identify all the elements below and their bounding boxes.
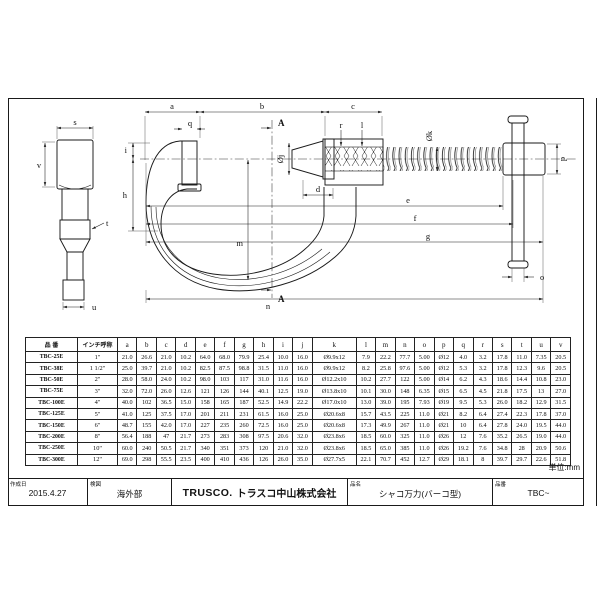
model-cell: TBC-200E (26, 431, 78, 442)
value-cell: 201 (195, 408, 214, 419)
value-cell: Ø9.9x12 (312, 363, 356, 374)
table-row: TBC-38E1 1/2"25.039.721.010.282.587.598.… (26, 363, 571, 374)
value-cell: 12.5 (273, 386, 292, 397)
value-cell: 27.8 (492, 420, 511, 431)
column-header: h (254, 338, 273, 352)
value-cell: 16.0 (273, 408, 292, 419)
value-cell: 25.0 (118, 363, 137, 374)
value-cell: 37.0 (551, 408, 571, 419)
value-cell: Ø21 (434, 408, 453, 419)
value-cell: 325 (395, 431, 414, 442)
value-cell: Ø15 (434, 386, 453, 397)
value-cell: 22.1 (356, 454, 375, 465)
column-header: s (492, 338, 511, 352)
value-cell: 103 (215, 374, 234, 385)
value-cell: 19.5 (531, 420, 550, 431)
value-cell: 18.6 (492, 374, 511, 385)
dim-label-b: b (260, 101, 264, 111)
value-cell: 26.6 (137, 352, 156, 363)
value-cell: 27.7 (376, 374, 395, 385)
table-row: TBC-75E3"32.072.026.012.612112614440.112… (26, 386, 571, 397)
value-cell: 10.2 (176, 363, 195, 374)
column-header: a (118, 338, 137, 352)
value-cell: 16.0 (293, 363, 312, 374)
value-cell: 39.0 (376, 397, 395, 408)
value-cell: 28 (512, 443, 531, 454)
value-cell: 26.0 (492, 397, 511, 408)
value-cell: 7.6 (473, 431, 492, 442)
value-cell: 10 (454, 420, 473, 431)
value-cell: 4.5 (473, 386, 492, 397)
value-cell: 82.5 (195, 363, 214, 374)
product-code-value: TBC~ (493, 488, 584, 498)
value-cell: 25.8 (376, 363, 395, 374)
value-cell: 17.5 (512, 386, 531, 397)
dim-label-n: n (266, 301, 271, 311)
title-block: 作成日 2015.4.27 検図 海外部 TRUSCO. トラスコ中山株式会社 … (8, 478, 584, 506)
table-row: TBC-25E1"21.026.621.010.264.068.079.925.… (26, 352, 571, 363)
value-cell: 283 (215, 431, 234, 442)
dim-label-m: m (236, 238, 243, 248)
value-cell: 12.9 (531, 397, 550, 408)
value-cell: Ø13.8x10 (312, 386, 356, 397)
value-cell: 60.0 (376, 431, 395, 442)
value-cell: 21.8 (492, 386, 511, 397)
model-cell: TBC-300E (26, 454, 78, 465)
column-header: b (137, 338, 156, 352)
company-name: トラスコ中山株式会社 (237, 485, 337, 500)
value-cell: 70.7 (376, 454, 395, 465)
value-cell: 32.0 (293, 443, 312, 454)
table-header-row: 品 番インチ呼称abcdefghijklmnopqrstuv (26, 338, 571, 352)
value-cell: 125 (137, 408, 156, 419)
value-cell: 17.3 (356, 420, 375, 431)
value-cell: 22.2 (293, 397, 312, 408)
value-cell: 452 (395, 454, 414, 465)
value-cell: 72.0 (137, 386, 156, 397)
value-cell: 32.0 (293, 431, 312, 442)
value-cell: 8.2 (454, 408, 473, 419)
inch-cell: 5" (78, 408, 118, 419)
value-cell: 55.5 (156, 454, 175, 465)
dim-label-q: q (188, 118, 193, 128)
drawing-sheet: s v t u (0, 0, 600, 600)
value-cell: 16.0 (293, 352, 312, 363)
value-cell: 56.4 (118, 431, 137, 442)
value-cell: 10.1 (356, 386, 375, 397)
value-cell: 18.2 (512, 397, 531, 408)
value-cell: 187 (234, 397, 253, 408)
value-cell: Ø20.6x8 (312, 420, 356, 431)
value-cell: 13 (531, 386, 550, 397)
product-name-value: シャコ万力(バーコ型) (348, 488, 492, 500)
value-cell: Ø9.9x12 (312, 352, 356, 363)
section-label-top: A (278, 118, 285, 128)
table-row: TBC-50E2"28.058.024.010.298.010311731.01… (26, 374, 571, 385)
column-header: e (195, 338, 214, 352)
value-cell: 19.0 (293, 386, 312, 397)
value-cell: 7.9 (356, 352, 375, 363)
column-header: n (395, 338, 414, 352)
value-cell: 11.0 (415, 408, 434, 419)
dim-label-t: t (106, 218, 109, 228)
value-cell: 10.8 (531, 374, 550, 385)
value-cell: 60.0 (118, 443, 137, 454)
value-cell: 240 (137, 443, 156, 454)
value-cell: 7.6 (473, 443, 492, 454)
value-cell: 195 (395, 397, 414, 408)
value-cell: 41.0 (118, 408, 137, 419)
column-header: t (512, 338, 531, 352)
value-cell: 12.3 (512, 363, 531, 374)
value-cell: 21.0 (156, 352, 175, 363)
screw-part-drawing: s v t u (37, 117, 109, 312)
value-cell: 17.0 (176, 408, 195, 419)
inch-cell: 12" (78, 454, 118, 465)
column-header: j (293, 338, 312, 352)
value-cell: 10.2 (356, 374, 375, 385)
value-cell: 17.0 (176, 420, 195, 431)
value-cell: 308 (234, 431, 253, 442)
value-cell: 39.7 (137, 363, 156, 374)
value-cell: 17.8 (492, 363, 511, 374)
created-date-label: 作成日 (10, 480, 27, 488)
value-cell: 97.6 (395, 363, 414, 374)
value-cell: 31.5 (551, 397, 571, 408)
value-cell: 98.0 (195, 374, 214, 385)
value-cell: 20.5 (551, 352, 571, 363)
value-cell: 13.0 (356, 397, 375, 408)
value-cell: 260 (234, 420, 253, 431)
value-cell: 98.8 (234, 363, 253, 374)
value-cell: 14.4 (512, 374, 531, 385)
value-cell: Ø12.2x10 (312, 374, 356, 385)
value-cell: 6.4 (473, 408, 492, 419)
checked-by-cell: 検図 海外部 (88, 479, 172, 506)
value-cell: 6.5 (454, 386, 473, 397)
table-row: TBC-250E10"60.024050.521.734035137312021… (26, 443, 571, 454)
value-cell: 58.0 (137, 374, 156, 385)
value-cell: 5.00 (415, 352, 434, 363)
value-cell: 20.5 (551, 363, 571, 374)
value-cell: 148 (395, 386, 414, 397)
value-cell: 23.0 (551, 374, 571, 385)
model-cell: TBC-125E (26, 408, 78, 419)
value-cell: 11.0 (273, 363, 292, 374)
value-cell: 227 (195, 420, 214, 431)
value-cell: 23.5 (176, 454, 195, 465)
table-row: TBC-125E5"41.012537.517.020121123161.516… (26, 408, 571, 419)
value-cell: 155 (137, 420, 156, 431)
created-date-cell: 作成日 2015.4.27 (8, 479, 88, 506)
value-cell: 11.0 (512, 352, 531, 363)
column-header: l (356, 338, 375, 352)
value-cell: 19.0 (531, 431, 550, 442)
value-cell: 30.0 (376, 386, 395, 397)
table-row: TBC-200E8"56.41884721.727328330897.520.6… (26, 431, 571, 442)
value-cell: 117 (234, 374, 253, 385)
value-cell: 7.93 (415, 397, 434, 408)
value-cell: 12.6 (176, 386, 195, 397)
column-header: o (415, 338, 434, 352)
value-cell: 25.4 (254, 352, 273, 363)
value-cell: 351 (215, 443, 234, 454)
value-cell: 15.0 (176, 397, 195, 408)
model-cell: TBC-150E (26, 420, 78, 431)
column-header: d (176, 338, 195, 352)
dim-label-a: a (170, 101, 174, 111)
column-header: r (473, 338, 492, 352)
model-cell: TBC-38E (26, 363, 78, 374)
value-cell: 47 (156, 431, 175, 442)
value-cell: 231 (234, 408, 253, 419)
value-cell: 68.0 (215, 352, 234, 363)
value-cell: 21.7 (176, 431, 195, 442)
dim-label-g: g (426, 231, 431, 241)
dim-label-u: u (92, 302, 97, 312)
dim-label-c: c (351, 101, 355, 111)
value-cell: 16.0 (273, 420, 292, 431)
value-cell: 21.0 (118, 352, 137, 363)
inch-cell: 1 1/2" (78, 363, 118, 374)
dim-label-s: s (73, 117, 76, 127)
value-cell: 126 (215, 386, 234, 397)
column-header: c (156, 338, 175, 352)
value-cell: Ø19 (434, 397, 453, 408)
value-cell: 44.0 (551, 431, 571, 442)
value-cell: 20.9 (531, 443, 550, 454)
column-header: q (454, 338, 473, 352)
value-cell: 9.5 (454, 397, 473, 408)
value-cell: 121 (195, 386, 214, 397)
dim-label-f: f (414, 213, 417, 223)
value-cell: 21.0 (156, 363, 175, 374)
value-cell: 235 (215, 420, 234, 431)
value-cell: 5.3 (454, 363, 473, 374)
value-cell: 17.8 (492, 352, 511, 363)
value-cell: 165 (215, 397, 234, 408)
value-cell: 28.0 (118, 374, 137, 385)
value-cell: Ø17.0x10 (312, 397, 356, 408)
value-cell: 34.8 (492, 443, 511, 454)
value-cell: 79.9 (234, 352, 253, 363)
value-cell: 31.0 (254, 374, 273, 385)
value-cell: 22.2 (376, 352, 395, 363)
value-cell: 8.2 (356, 363, 375, 374)
value-cell: 5.00 (415, 374, 434, 385)
value-cell: 211 (215, 408, 234, 419)
dim-label-l: l (361, 120, 364, 130)
value-cell: 6.35 (415, 386, 434, 397)
dimension-table: 品 番インチ呼称abcdefghijklmnopqrstuv TBC-25E1"… (25, 337, 571, 466)
value-cell: 5.3 (473, 397, 492, 408)
value-cell: 24.0 (156, 374, 175, 385)
table-row: TBC-150E6"48.715542.017.022723526072.516… (26, 420, 571, 431)
dim-label-h: h (123, 190, 128, 200)
value-cell: 36.5 (156, 397, 175, 408)
column-header: p (434, 338, 453, 352)
dim-label-d: d (316, 184, 321, 194)
inch-cell: 4" (78, 397, 118, 408)
value-cell: 11.0 (415, 431, 434, 442)
value-cell: 43.5 (376, 408, 395, 419)
inch-cell: 6" (78, 420, 118, 431)
value-cell: 158 (195, 397, 214, 408)
value-cell: Ø14 (434, 374, 453, 385)
product-name-cell: 品名 シャコ万力(バーコ型) (348, 479, 493, 506)
dim-label-v: v (37, 160, 42, 170)
screw-shaft (62, 189, 88, 220)
screw-tip (63, 280, 84, 300)
knurled-knob (57, 140, 93, 189)
column-header: インチ呼称 (78, 338, 118, 352)
fixed-jaw (182, 141, 197, 185)
value-cell: Ø12 (434, 352, 453, 363)
product-code-cell: 品番 TBC~ (493, 479, 584, 506)
value-cell: 44.0 (551, 420, 571, 431)
value-cell: 35.0 (293, 454, 312, 465)
value-cell: 87.5 (215, 363, 234, 374)
value-cell: Ø12 (434, 363, 453, 374)
column-header: 品 番 (26, 338, 78, 352)
value-cell: 436 (234, 454, 253, 465)
value-cell: 25.0 (293, 408, 312, 419)
value-cell: 7.35 (531, 352, 550, 363)
value-cell: Ø27.7x5 (312, 454, 356, 465)
value-cell: 16.0 (293, 374, 312, 385)
value-cell: 64.0 (195, 352, 214, 363)
value-cell: 144 (234, 386, 253, 397)
value-cell: 40.0 (118, 397, 137, 408)
value-cell: 126 (254, 454, 273, 465)
value-cell: 273 (195, 431, 214, 442)
unit-note: 単位:mm (420, 462, 580, 473)
value-cell: 40.1 (254, 386, 273, 397)
technical-drawing: s v t u (0, 0, 600, 340)
product-name-label: 品名 (350, 480, 361, 488)
model-cell: TBC-75E (26, 386, 78, 397)
value-cell: 50.5 (156, 443, 175, 454)
value-cell: 18.5 (356, 443, 375, 454)
value-cell: Ø26 (434, 431, 453, 442)
value-cell: 26.0 (273, 454, 292, 465)
inch-cell: 8" (78, 431, 118, 442)
column-header: g (234, 338, 253, 352)
value-cell: 385 (395, 443, 414, 454)
value-cell: 77.7 (395, 352, 414, 363)
created-date-value: 2015.4.27 (8, 488, 87, 498)
value-cell: 102 (137, 397, 156, 408)
value-cell: 27.0 (551, 386, 571, 397)
value-cell: Ø20.6x8 (312, 408, 356, 419)
value-cell: 17.8 (531, 408, 550, 419)
value-cell: 120 (254, 443, 273, 454)
value-cell: 298 (137, 454, 156, 465)
value-cell: 35.2 (492, 431, 511, 442)
column-header: f (215, 338, 234, 352)
value-cell: 373 (234, 443, 253, 454)
column-header: u (531, 338, 550, 352)
value-cell: 11.0 (415, 443, 434, 454)
dim-label-e: e (406, 195, 410, 205)
product-code-label: 品番 (495, 480, 506, 488)
value-cell: 14.9 (273, 397, 292, 408)
value-cell: 69.0 (118, 454, 137, 465)
handle-end-bottom (508, 261, 528, 268)
handle-end-top (508, 116, 528, 123)
value-cell: 3.2 (473, 363, 492, 374)
value-cell: 50.6 (551, 443, 571, 454)
value-cell: 26.5 (512, 431, 531, 442)
value-cell: 10.2 (176, 374, 195, 385)
company-cell: TRUSCO. トラスコ中山株式会社 (172, 479, 348, 506)
value-cell: 9.6 (531, 363, 550, 374)
value-cell: 400 (195, 454, 214, 465)
value-cell: 6.2 (454, 374, 473, 385)
model-cell: TBC-25E (26, 352, 78, 363)
screw-thread (383, 147, 503, 171)
value-cell: 72.5 (254, 420, 273, 431)
value-cell: 122 (395, 374, 414, 385)
value-cell: 49.9 (376, 420, 395, 431)
value-cell: 24.0 (512, 420, 531, 431)
value-cell: 65.0 (376, 443, 395, 454)
value-cell: 97.5 (254, 431, 273, 442)
column-header: m (376, 338, 395, 352)
value-cell: 25.0 (293, 420, 312, 431)
dim-label-r: r (340, 120, 343, 130)
column-header: v (551, 338, 571, 352)
value-cell: 61.5 (254, 408, 273, 419)
checked-by-value: 海外部 (88, 488, 171, 500)
table-row: TBC-100E4"40.010236.515.015816518752.514… (26, 397, 571, 408)
value-cell: 22.3 (512, 408, 531, 419)
value-cell: Ø23.8x6 (312, 431, 356, 442)
column-header: i (273, 338, 292, 352)
value-cell: 20.6 (273, 431, 292, 442)
value-cell: 188 (137, 431, 156, 442)
value-cell: 18.5 (356, 431, 375, 442)
value-cell: 11.0 (415, 420, 434, 431)
value-cell: 11.6 (273, 374, 292, 385)
value-cell: Ø21 (434, 420, 453, 431)
value-cell: 15.7 (356, 408, 375, 419)
column-header: k (312, 338, 356, 352)
value-cell: 19.2 (454, 443, 473, 454)
inch-cell: 1" (78, 352, 118, 363)
value-cell: 42.0 (156, 420, 175, 431)
model-cell: TBC-50E (26, 374, 78, 385)
value-cell: 267 (395, 420, 414, 431)
value-cell: 3.2 (473, 352, 492, 363)
model-cell: TBC-100E (26, 397, 78, 408)
value-cell: 21.0 (273, 443, 292, 454)
value-cell: 225 (395, 408, 414, 419)
inch-cell: 2" (78, 374, 118, 385)
value-cell: Ø23.8x6 (312, 443, 356, 454)
value-cell: 12 (454, 431, 473, 442)
clamp-drawing: A A (123, 101, 576, 311)
value-cell: 10.2 (176, 352, 195, 363)
value-cell: 410 (215, 454, 234, 465)
value-cell: Ø26 (434, 443, 453, 454)
value-cell: 21.7 (176, 443, 195, 454)
dim-label-phi-k: Øk (424, 130, 434, 141)
inch-cell: 10" (78, 443, 118, 454)
value-cell: 31.5 (254, 363, 273, 374)
dimension-table-wrap: 品 番インチ呼称abcdefghijklmnopqrstuv TBC-25E1"… (25, 337, 571, 466)
model-cell: TBC-250E (26, 443, 78, 454)
